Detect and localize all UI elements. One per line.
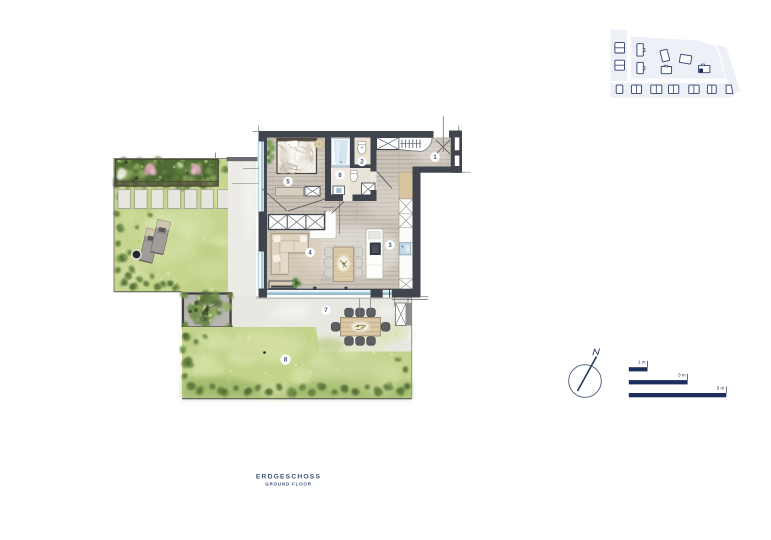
- svg-text:GROUND FLOOR: GROUND FLOOR: [265, 482, 312, 487]
- svg-text:5 m: 5 m: [717, 385, 725, 390]
- svg-text:ERDGESCHOSS: ERDGESCHOSS: [256, 474, 321, 481]
- svg-text:3 m: 3 m: [678, 372, 686, 377]
- svg-text:1 m: 1 m: [638, 360, 646, 365]
